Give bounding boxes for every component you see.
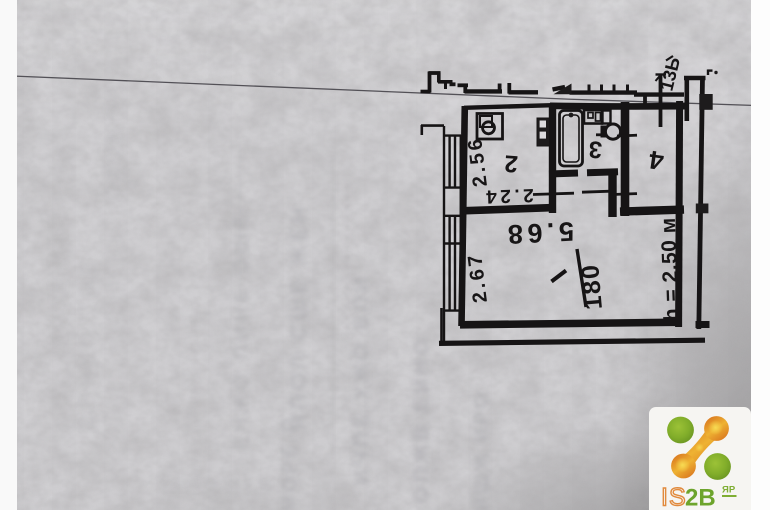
svg-text:МОРЕ П: МОРЕ П: [279, 415, 301, 510]
svg-text:ПОЧЕ ВНИ: ПОЧЕ ВНИ: [48, 212, 70, 350]
svg-text:ЕНЖО ПИНЕ ОШЕ: ЕНЖО ПИНЕ ОШЕ: [230, 211, 253, 450]
svg-text:2.24: 2.24: [482, 184, 534, 207]
svg-text:ИЧПЕ УЖО ВПИ: ИЧПЕ УЖО ВПИ: [350, 273, 373, 485]
svg-text:5.68: 5.68: [503, 216, 575, 250]
svg-text:h = 2.50 м: h = 2.50 м: [657, 217, 684, 322]
svg-text:2: 2: [504, 149, 519, 177]
svg-text:2B: 2B: [685, 485, 716, 510]
svg-text:ЯР: ЯР: [722, 485, 736, 496]
svg-text:ОПЖВ ЕИНО: ОПЖВ ЕИНО: [410, 335, 433, 503]
svg-text:IS: IS: [661, 484, 687, 510]
svg-text:180: 180: [576, 262, 608, 310]
svg-text:ЯШЖ ИРО: ЯШЖ ИРО: [471, 390, 493, 510]
svg-text:3: 3: [588, 135, 603, 163]
svg-text:НПОЛ СШЕ ЖЕН: НПОЛ СШЕ ЖЕН: [286, 203, 311, 430]
svg-text:ОВЧЕ ПИ: ОВЧЕ ПИ: [103, 81, 125, 200]
svg-text:ЧПЕО ВУЖ: ЧПЕО ВУЖ: [160, 475, 275, 494]
svg-text:ВПЧЕО ТНЕ: ВПЧЕО ТНЕ: [75, 256, 100, 430]
